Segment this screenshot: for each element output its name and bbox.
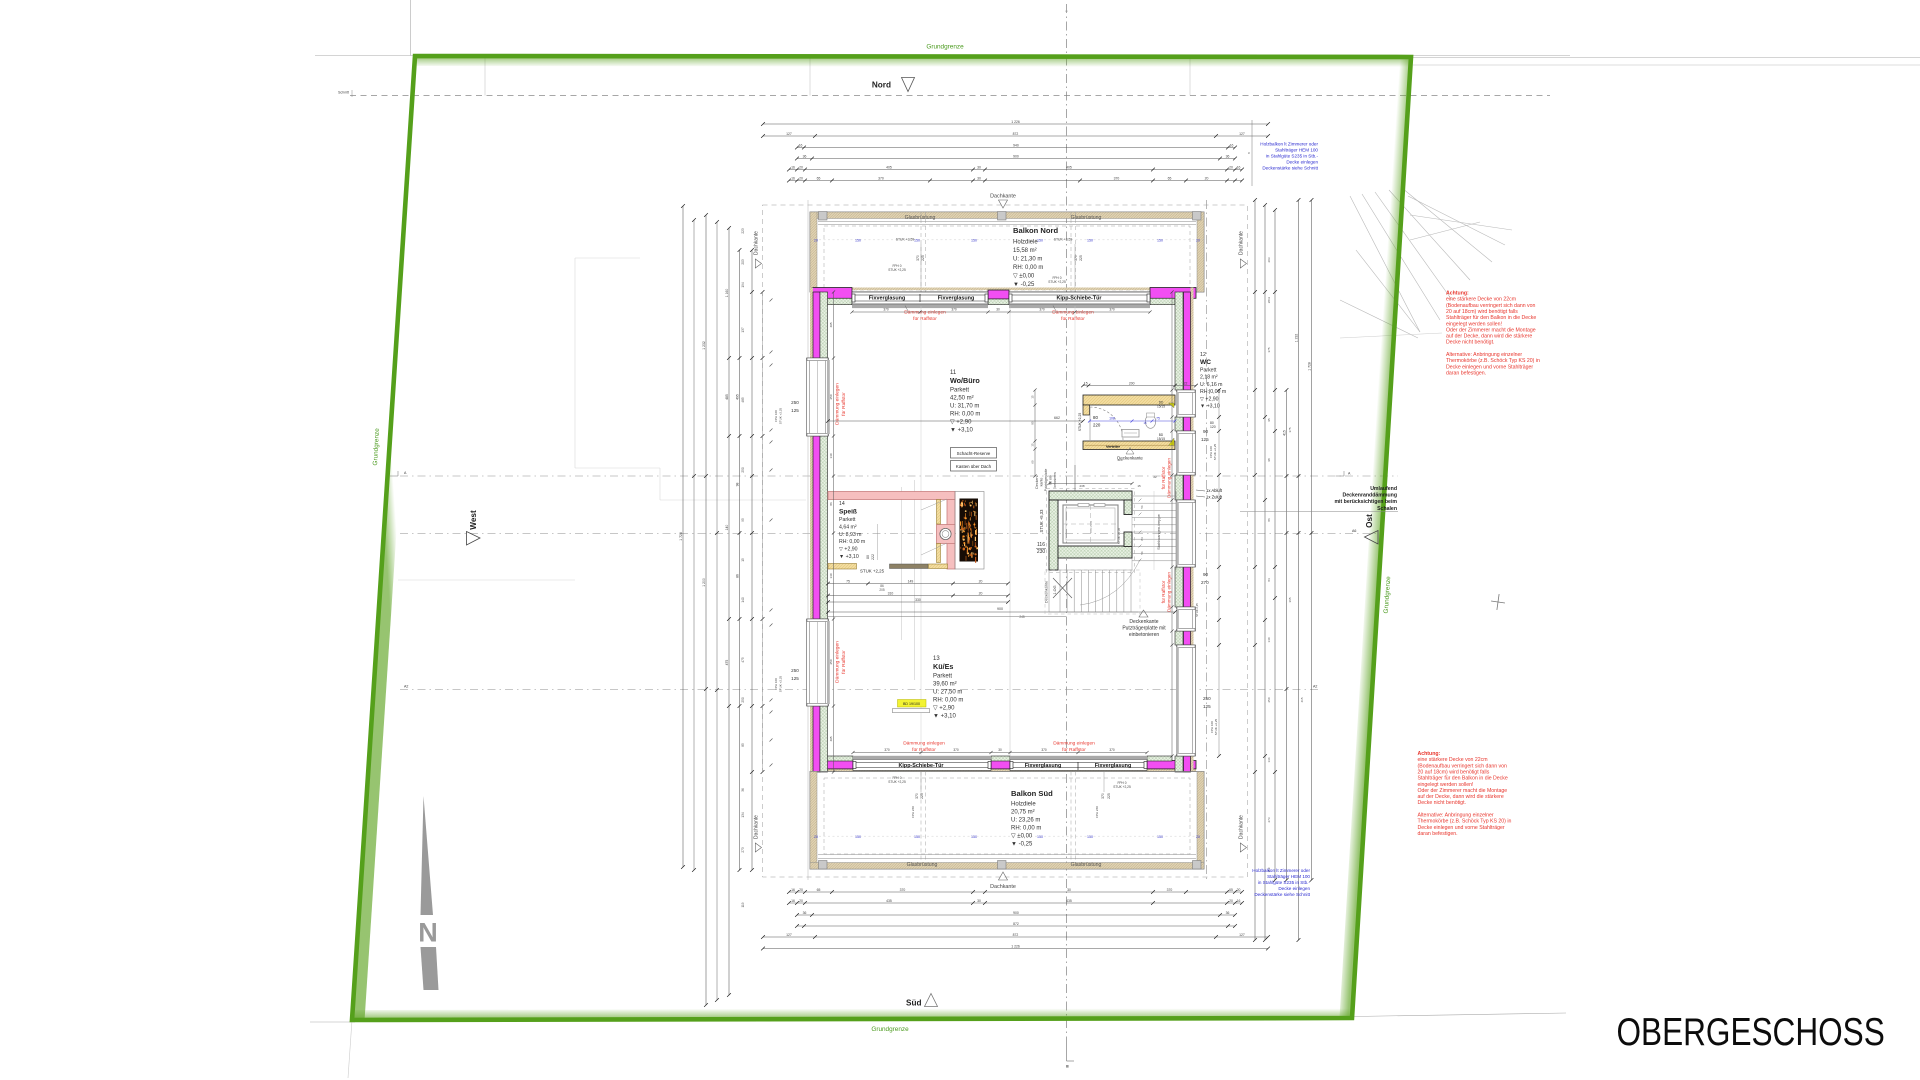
- svg-text:127: 127: [1239, 933, 1245, 937]
- svg-text:U: 31,70 m: U: 31,70 m: [950, 404, 979, 410]
- svg-text:A2: A2: [404, 685, 408, 689]
- svg-text:150: 150: [971, 239, 977, 243]
- svg-text:STUK +2,25: STUK +2,25: [1214, 718, 1218, 735]
- svg-text:222: 222: [871, 554, 875, 560]
- svg-text:Decke einlegen: Decke einlegen: [1278, 886, 1310, 891]
- svg-text:95: 95: [741, 518, 745, 522]
- svg-text:1 232: 1 232: [1294, 334, 1298, 343]
- svg-text:FPH 260: FPH 260: [911, 806, 915, 818]
- svg-text:203: 203: [1267, 257, 1271, 262]
- svg-text:STUK +5,33: STUK +5,33: [1039, 509, 1044, 533]
- svg-text:15: 15: [1137, 484, 1141, 488]
- svg-text:Glasbrüstung: Glasbrüstung: [1071, 215, 1102, 221]
- svg-text:Glasbrüstung: Glasbrüstung: [905, 215, 936, 221]
- svg-text:370: 370: [900, 888, 906, 892]
- svg-text:STUK +2,25: STUK +2,25: [860, 569, 885, 574]
- svg-text:370: 370: [884, 748, 890, 752]
- svg-text:2,18 m²: 2,18 m²: [1200, 375, 1218, 381]
- svg-text:▽ +2,90: ▽ +2,90: [950, 420, 972, 426]
- svg-text:RH: 0,00 m: RH: 0,00 m: [1011, 826, 1041, 832]
- svg-text:Achtung:: Achtung:: [1446, 291, 1469, 297]
- svg-text:900: 900: [997, 607, 1003, 611]
- svg-text:127: 127: [786, 132, 792, 136]
- svg-text:STUK +2,25: STUK +2,25: [1048, 280, 1066, 284]
- svg-text:20: 20: [979, 591, 983, 595]
- svg-text:STUK +3,59: STUK +3,59: [1054, 238, 1073, 242]
- svg-text:Deckenkante: Deckenkante: [1129, 619, 1158, 625]
- svg-text:15: 15: [1031, 443, 1035, 447]
- svg-text:Speiß: Speiß: [839, 509, 857, 516]
- svg-text:▼ +3,10: ▼ +3,10: [1200, 404, 1220, 410]
- svg-text:Stahlträger HEM 100: Stahlträger HEM 100: [1267, 874, 1310, 879]
- svg-text:30: 30: [998, 748, 1002, 752]
- svg-text:▽ ±0,00: ▽ ±0,00: [1011, 834, 1033, 840]
- svg-text:872: 872: [1013, 933, 1019, 937]
- svg-text:Wo/Büro: Wo/Büro: [950, 376, 980, 385]
- svg-text:▽ +2,90: ▽ +2,90: [1200, 396, 1219, 402]
- svg-text:330: 330: [915, 598, 921, 602]
- svg-text:127: 127: [1239, 132, 1245, 136]
- svg-text:250: 250: [829, 394, 833, 399]
- svg-text:230: 230: [1037, 549, 1046, 555]
- svg-text:BD 19/100: BD 19/100: [903, 702, 920, 706]
- svg-text:415: 415: [1282, 430, 1286, 436]
- svg-text:Kipp-Schiebe-Tür: Kipp-Schiebe-Tür: [1057, 296, 1103, 302]
- svg-text:mit berücksichtigen beim: mit berücksichtigen beim: [1334, 499, 1397, 505]
- svg-text:370: 370: [1167, 888, 1173, 892]
- svg-text:194: 194: [741, 282, 745, 288]
- svg-text:370: 370: [878, 176, 884, 180]
- svg-text:Nord: Nord: [872, 81, 891, 90]
- svg-text:FPH 260: FPH 260: [1095, 806, 1099, 818]
- svg-text:20: 20: [799, 899, 803, 903]
- svg-text:betonieren: betonieren: [1053, 472, 1057, 487]
- svg-text:16: 16: [1237, 165, 1241, 169]
- svg-text:daran befestigen.: daran befestigen.: [1446, 370, 1486, 376]
- svg-text:Glasbrüstung: Glasbrüstung: [907, 862, 938, 868]
- svg-text:16: 16: [1237, 899, 1241, 903]
- svg-text:Alternative: Anbringung einzel: Alternative: Anbringung einzelner: [1418, 813, 1494, 819]
- svg-text:16: 16: [799, 143, 803, 147]
- svg-text:Dämmung einlegen: Dämmung einlegen: [904, 310, 946, 316]
- svg-text:1 200: 1 200: [702, 578, 706, 587]
- svg-text:STUK +2,25: STUK +2,25: [1213, 443, 1217, 460]
- svg-text:daran befestigen.: daran befestigen.: [1418, 831, 1458, 837]
- svg-text:Stahlwangen-treppe: Stahlwangen-treppe: [1156, 513, 1161, 550]
- svg-text:475: 475: [741, 657, 745, 663]
- svg-text:Dachkante: Dachkante: [990, 884, 1016, 890]
- svg-text:(Bodenaufbau verringert sich d: (Bodenaufbau verringert sich dann von: [1446, 303, 1536, 309]
- svg-text:203: 203: [741, 259, 745, 265]
- svg-text:STUK 2,25: STUK 2,25: [1195, 603, 1199, 617]
- svg-text:STUK +2,25: STUK +2,25: [888, 780, 906, 784]
- svg-text:36: 36: [803, 911, 807, 915]
- svg-text:370: 370: [1101, 793, 1105, 799]
- svg-text:36: 36: [741, 788, 745, 792]
- svg-text:Dämmung einlegen: Dämmung einlegen: [903, 741, 945, 747]
- svg-text:Dachkante: Dachkante: [1239, 815, 1245, 839]
- svg-text:15/15: 15/15: [1157, 437, 1165, 441]
- svg-text:65: 65: [1229, 888, 1233, 892]
- svg-text:Decke einlegen: Decke einlegen: [1286, 160, 1318, 165]
- svg-text:250: 250: [741, 467, 745, 473]
- svg-text:270: 270: [1201, 580, 1209, 585]
- svg-text:250: 250: [1203, 696, 1211, 701]
- svg-text:Balkon Süd: Balkon Süd: [1011, 789, 1053, 798]
- svg-text:Decken-: Decken-: [1035, 475, 1039, 489]
- svg-text:65: 65: [817, 888, 821, 892]
- svg-text:150: 150: [855, 239, 861, 243]
- svg-text:einbetonieren: einbetonieren: [1129, 632, 1160, 638]
- svg-text:Dämmung einlegen: Dämmung einlegen: [1167, 572, 1172, 612]
- svg-text:AUFZUG: AUFZUG: [1089, 520, 1093, 533]
- svg-text:370: 370: [883, 308, 889, 312]
- svg-text:150: 150: [1087, 239, 1093, 243]
- svg-text:75: 75: [846, 579, 850, 583]
- svg-text:20: 20: [1237, 888, 1241, 892]
- svg-text:Deckenstärke siehe Schnitt: Deckenstärke siehe Schnitt: [1262, 166, 1318, 171]
- svg-text:▼ -0,25: ▼ -0,25: [1011, 842, 1033, 848]
- svg-text:1.OG: 1.OG: [1053, 585, 1057, 594]
- svg-text:Holzbalkon lt Zimmerer oder: Holzbalkon lt Zimmerer oder: [1260, 142, 1318, 147]
- svg-text:15: 15: [1143, 421, 1147, 425]
- svg-text:36: 36: [1226, 911, 1230, 915]
- svg-text:(Bodenaufbau verringert sich d: (Bodenaufbau verringert sich dann von: [1418, 763, 1508, 769]
- svg-text:OBERGESCHOSS: OBERGESCHOSS: [1617, 1011, 1885, 1054]
- svg-text:370: 370: [951, 308, 957, 312]
- svg-text:▼ -0,25: ▼ -0,25: [1013, 282, 1035, 288]
- svg-text:Achtung:: Achtung:: [1418, 751, 1441, 757]
- svg-text:U: 23,26 m: U: 23,26 m: [1011, 818, 1040, 824]
- svg-text:84: 84: [1140, 537, 1144, 541]
- svg-text:125: 125: [791, 408, 799, 413]
- svg-text:86: 86: [829, 502, 833, 506]
- svg-text:370: 370: [1114, 176, 1120, 180]
- svg-text:1 226: 1 226: [1011, 120, 1020, 124]
- svg-text:200: 200: [1129, 381, 1135, 385]
- svg-text:STUK +5,36: STUK +5,36: [1117, 527, 1121, 544]
- svg-text:U: 21,30 m: U: 21,30 m: [1013, 257, 1042, 263]
- svg-text:2811: 2811: [1267, 296, 1271, 303]
- svg-text:Oder der Zimmerer macht die Mo: Oder der Zimmerer macht die Montage: [1418, 788, 1508, 794]
- svg-text:36: 36: [803, 154, 807, 158]
- svg-text:250: 250: [1267, 697, 1271, 702]
- svg-text:1x Zuluft: 1x Zuluft: [1206, 495, 1223, 500]
- svg-text:eingelegt werden sollen!: eingelegt werden sollen!: [1418, 782, 1474, 788]
- svg-text:370: 370: [1109, 308, 1115, 312]
- svg-text:Putzträgerplatte mit: Putzträgerplatte mit: [1122, 626, 1166, 632]
- svg-text:872: 872: [1013, 922, 1019, 926]
- svg-text:310: 310: [888, 591, 894, 595]
- svg-text:140: 140: [725, 525, 729, 531]
- svg-text:119: 119: [741, 902, 745, 907]
- svg-text:435: 435: [886, 899, 892, 903]
- svg-text:415: 415: [1300, 697, 1304, 702]
- svg-text:Deckenkante: Deckenkante: [1045, 581, 1049, 603]
- svg-text:56: 56: [1140, 505, 1144, 509]
- svg-text:370: 370: [915, 793, 919, 799]
- svg-text:150: 150: [1157, 239, 1163, 243]
- svg-text:940: 940: [1013, 143, 1019, 147]
- svg-text:Stahlträger HEM 100: Stahlträger HEM 100: [1275, 148, 1318, 153]
- svg-text:eingelegt werden sollen!: eingelegt werden sollen!: [1446, 321, 1502, 327]
- svg-text:Stahlträger für den Balkon in: Stahlträger für den Balkon in die Decke: [1418, 776, 1508, 782]
- svg-text:RH: 0,00 m: RH: 0,00 m: [839, 539, 865, 545]
- svg-text:Dachkante: Dachkante: [754, 231, 760, 255]
- svg-text:22: 22: [1153, 475, 1157, 479]
- svg-text:20: 20: [799, 888, 803, 892]
- svg-text:80: 80: [866, 555, 870, 559]
- svg-text:Decke nicht benötigt.: Decke nicht benötigt.: [1418, 800, 1466, 806]
- svg-text:RH: 0,00 m: RH: 0,00 m: [933, 698, 963, 704]
- svg-text:150: 150: [1037, 835, 1043, 839]
- svg-text:475: 475: [725, 660, 729, 666]
- svg-text:205: 205: [879, 588, 885, 592]
- svg-text:116: 116: [1037, 542, 1045, 548]
- svg-text:für Raffstor: für Raffstor: [841, 650, 847, 674]
- svg-text:370: 370: [1074, 255, 1078, 261]
- svg-text:495: 495: [735, 394, 739, 400]
- svg-text:20 auf 18cm) wird benötigt fal: 20 auf 18cm) wird benötigt falls: [1446, 309, 1518, 315]
- svg-text:in Stahlgüte S235 in Stb.-: in Stahlgüte S235 in Stb.-: [1258, 880, 1311, 885]
- svg-text:Parkett: Parkett: [1200, 368, 1217, 374]
- svg-text:16: 16: [791, 176, 795, 180]
- svg-text:98: 98: [1267, 458, 1271, 462]
- svg-text:STUK +2,25: STUK +2,25: [779, 675, 783, 692]
- svg-text:20: 20: [799, 165, 803, 169]
- svg-text:Parkett: Parkett: [933, 674, 952, 680]
- svg-text:20: 20: [814, 239, 818, 243]
- svg-text:auf der Decke, dann wird die s: auf der Decke, dann wird die stärkere: [1418, 794, 1504, 800]
- svg-text:Deckenranddämmung: Deckenranddämmung: [1343, 493, 1397, 499]
- svg-text:FPH 100: FPH 100: [774, 410, 778, 422]
- svg-text:365: 365: [1288, 597, 1292, 602]
- svg-text:150: 150: [855, 835, 861, 839]
- svg-text:Dachkante: Dachkante: [1239, 231, 1245, 255]
- svg-text:20: 20: [1205, 176, 1209, 180]
- svg-text:Decke einlegen und vorne Stahl: Decke einlegen und vorne Stahlträger: [1418, 825, 1505, 831]
- svg-text:370: 370: [916, 255, 920, 261]
- svg-text:495: 495: [829, 736, 833, 741]
- svg-text:140: 140: [741, 597, 745, 603]
- svg-text:Deckenstärke siehe Schnitt: Deckenstärke siehe Schnitt: [1254, 892, 1310, 897]
- svg-text:273: 273: [1267, 817, 1271, 822]
- svg-text:Parkett: Parkett: [950, 388, 969, 394]
- svg-text:20: 20: [1229, 165, 1233, 169]
- svg-text:U: 27,50 m: U: 27,50 m: [933, 690, 962, 696]
- svg-text:125: 125: [791, 676, 799, 681]
- svg-text:Süd: Süd: [906, 999, 921, 1008]
- svg-text:36: 36: [1226, 154, 1230, 158]
- svg-text:220: 220: [1093, 423, 1101, 428]
- svg-text:RH: 0,00 m: RH: 0,00 m: [1013, 265, 1043, 271]
- svg-text:Schacht-Reserve: Schacht-Reserve: [957, 451, 991, 456]
- svg-text:U: 8,93 m: U: 8,93 m: [839, 532, 862, 538]
- svg-text:Dämmung einlegen: Dämmung einlegen: [1053, 741, 1095, 747]
- svg-text:1 160: 1 160: [725, 289, 729, 298]
- svg-text:1 232: 1 232: [702, 341, 706, 350]
- svg-text:223: 223: [1117, 458, 1122, 462]
- svg-text:150: 150: [1087, 835, 1093, 839]
- svg-text:1 728: 1 728: [679, 532, 683, 541]
- svg-text:30: 30: [996, 308, 1000, 312]
- svg-text:225: 225: [920, 793, 924, 799]
- svg-text:für Raffstor: für Raffstor: [1161, 580, 1166, 603]
- svg-text:872: 872: [1013, 132, 1019, 136]
- svg-text:Fixverglasung: Fixverglasung: [938, 296, 975, 302]
- svg-text:▽ ±0,00: ▽ ±0,00: [1013, 274, 1035, 280]
- svg-text:56: 56: [1140, 551, 1144, 555]
- svg-text:Kasten über Dach: Kasten über Dach: [956, 464, 992, 469]
- svg-text:108: 108: [1109, 417, 1115, 421]
- svg-text:84: 84: [1267, 578, 1271, 582]
- svg-text:▼ +3,10: ▼ +3,10: [950, 428, 973, 434]
- svg-text:Stahlträger für den Balkon in: Stahlträger für den Balkon in die Decke: [1446, 315, 1536, 321]
- svg-text:127: 127: [786, 933, 792, 937]
- svg-text:für Raffstor: für Raffstor: [913, 316, 937, 322]
- svg-text:30: 30: [977, 899, 981, 903]
- svg-text:137: 137: [741, 327, 745, 333]
- svg-text:FPH 100: FPH 100: [774, 678, 778, 690]
- svg-text:16: 16: [791, 888, 795, 892]
- svg-text:20: 20: [1196, 835, 1200, 839]
- svg-text:Decke nicht benötigt.: Decke nicht benötigt.: [1446, 340, 1494, 346]
- svg-text:65: 65: [817, 176, 821, 180]
- svg-text:für Raffstor: für Raffstor: [912, 747, 936, 753]
- svg-text:20: 20: [1229, 899, 1233, 903]
- svg-text:14: 14: [839, 501, 845, 507]
- svg-text:Fixverglasung: Fixverglasung: [1025, 763, 1062, 769]
- svg-text:375: 375: [1267, 347, 1271, 352]
- svg-text:370: 370: [1039, 308, 1045, 312]
- svg-text:STUK +2,25: STUK +2,25: [1113, 785, 1131, 789]
- svg-text:Holzdiele: Holzdiele: [1013, 240, 1038, 246]
- svg-text:eine stärkere Decke von 22cm: eine stärkere Decke von 22cm: [1446, 297, 1516, 303]
- svg-text:eine stärkere Decke von 22cm: eine stärkere Decke von 22cm: [1418, 757, 1488, 763]
- svg-text:A2: A2: [1313, 685, 1317, 689]
- svg-text:Schalen: Schalen: [1377, 506, 1397, 512]
- svg-text:Verteiler: Verteiler: [1106, 445, 1121, 449]
- svg-text:Thermokörbe (z.B. Schöck Typ K: Thermokörbe (z.B. Schöck Typ KS 20) in: [1446, 358, 1540, 364]
- svg-text:42,50 m²: 42,50 m²: [950, 396, 974, 402]
- svg-text:N: N: [418, 918, 438, 948]
- svg-text:16: 16: [791, 165, 795, 169]
- svg-text:485: 485: [725, 394, 729, 400]
- svg-text:60: 60: [1031, 460, 1035, 464]
- svg-text:Grundgrenze: Grundgrenze: [926, 44, 964, 51]
- svg-text:662: 662: [1054, 416, 1060, 420]
- svg-text:STUK +3,59: STUK +3,59: [896, 238, 915, 242]
- svg-text:22: 22: [1184, 381, 1188, 385]
- svg-text:WC: WC: [1200, 359, 1211, 366]
- svg-text:1 226: 1 226: [1011, 944, 1020, 948]
- svg-text:Dämmung einlegen: Dämmung einlegen: [1167, 458, 1172, 498]
- svg-text:▼ +3,10: ▼ +3,10: [933, 714, 956, 720]
- svg-text:150: 150: [1157, 835, 1163, 839]
- svg-text:495: 495: [829, 322, 833, 327]
- svg-text:39,60 m²: 39,60 m²: [933, 682, 957, 688]
- svg-text:405: 405: [1066, 165, 1072, 169]
- svg-text:150: 150: [914, 835, 920, 839]
- svg-text:98: 98: [735, 483, 739, 487]
- svg-text:für Raffstor: für Raffstor: [1161, 466, 1166, 489]
- svg-text:Kipp-Schiebe-Tür: Kipp-Schiebe-Tür: [899, 763, 945, 769]
- svg-text:225: 225: [1107, 793, 1111, 799]
- svg-text:15: 15: [1084, 381, 1088, 385]
- svg-text:20: 20: [799, 176, 803, 180]
- svg-text:20 auf 18cm) wird benötigt fal: 20 auf 18cm) wird benötigt falls: [1418, 769, 1490, 775]
- svg-text:150: 150: [914, 239, 920, 243]
- svg-text:370: 370: [1109, 748, 1115, 752]
- svg-text:15: 15: [1031, 395, 1035, 399]
- svg-text:▼ +3,10: ▼ +3,10: [839, 554, 859, 560]
- svg-text:80: 80: [1093, 415, 1098, 420]
- svg-text:485: 485: [741, 397, 745, 403]
- svg-text:375: 375: [1288, 427, 1292, 432]
- svg-text:95: 95: [1031, 421, 1035, 425]
- svg-text:in Stahlgüte S235 in Stb.-: in Stahlgüte S235 in Stb.-: [1266, 154, 1319, 159]
- svg-text:Fixverglasung: Fixverglasung: [1095, 763, 1132, 769]
- svg-text:150: 150: [971, 835, 977, 839]
- svg-text:Ost: Ost: [1365, 514, 1374, 528]
- svg-text:90: 90: [1203, 572, 1209, 577]
- svg-text:370: 370: [1041, 748, 1047, 752]
- svg-text:245: 245: [1019, 615, 1025, 619]
- svg-text:225: 225: [921, 255, 925, 261]
- svg-text:900: 900: [1013, 154, 1019, 158]
- svg-text:Glasbrüstung: Glasbrüstung: [1071, 862, 1102, 868]
- svg-text:140: 140: [829, 453, 833, 458]
- svg-text:Oder der Zimmerer macht die Mo: Oder der Zimmerer macht die Montage: [1446, 327, 1536, 333]
- svg-text:für Raffstor: für Raffstor: [1061, 316, 1085, 322]
- svg-text:120: 120: [1210, 425, 1216, 429]
- svg-text:STUK +2,25: STUK +2,25: [1078, 413, 1082, 432]
- svg-text:405: 405: [886, 165, 892, 169]
- svg-text:20: 20: [1196, 239, 1200, 243]
- svg-text:West: West: [469, 510, 478, 530]
- svg-text:Putzträgerplatte: Putzträgerplatte: [1044, 469, 1048, 492]
- svg-text:Balkon Nord: Balkon Nord: [1013, 226, 1059, 235]
- svg-text:75: 75: [1156, 417, 1160, 421]
- svg-text:30: 30: [977, 176, 981, 180]
- svg-text:Parkett: Parkett: [839, 517, 856, 523]
- svg-text:▽ +2,90: ▽ +2,90: [933, 706, 955, 712]
- svg-text:30: 30: [1067, 888, 1071, 892]
- svg-text:20: 20: [814, 835, 818, 839]
- svg-text:20: 20: [979, 579, 983, 583]
- svg-text:4,64 m²: 4,64 m²: [839, 524, 857, 530]
- svg-text:250: 250: [741, 697, 745, 703]
- svg-text:95: 95: [1267, 418, 1271, 422]
- svg-text:RH:|0,00 m: RH:|0,00 m: [1200, 389, 1226, 395]
- svg-text:140: 140: [829, 573, 833, 578]
- svg-text:Holzdiele: Holzdiele: [1011, 802, 1036, 808]
- svg-text:65: 65: [1168, 176, 1172, 180]
- svg-text:Dämmung einlegen: Dämmung einlegen: [835, 641, 841, 683]
- svg-text:1 728: 1 728: [1307, 362, 1311, 371]
- svg-text:250: 250: [791, 668, 799, 673]
- svg-text:Thermokörbe (z.B. Schöck Typ K: Thermokörbe (z.B. Schöck Typ KS 20) in: [1418, 819, 1512, 825]
- svg-text:Dämmung einlegen: Dämmung einlegen: [835, 383, 841, 425]
- svg-text:Holzbalkon lt Zimmerer oder: Holzbalkon lt Zimmerer oder: [1252, 868, 1310, 873]
- svg-text:Grundgrenze: Grundgrenze: [871, 1026, 909, 1033]
- svg-text:Dachkante: Dachkante: [990, 194, 1016, 200]
- svg-text:125: 125: [1201, 437, 1209, 442]
- svg-text:16: 16: [1230, 143, 1234, 147]
- svg-text:900: 900: [1013, 911, 1019, 915]
- svg-text:149: 149: [908, 579, 914, 583]
- svg-text:134: 134: [1267, 757, 1271, 762]
